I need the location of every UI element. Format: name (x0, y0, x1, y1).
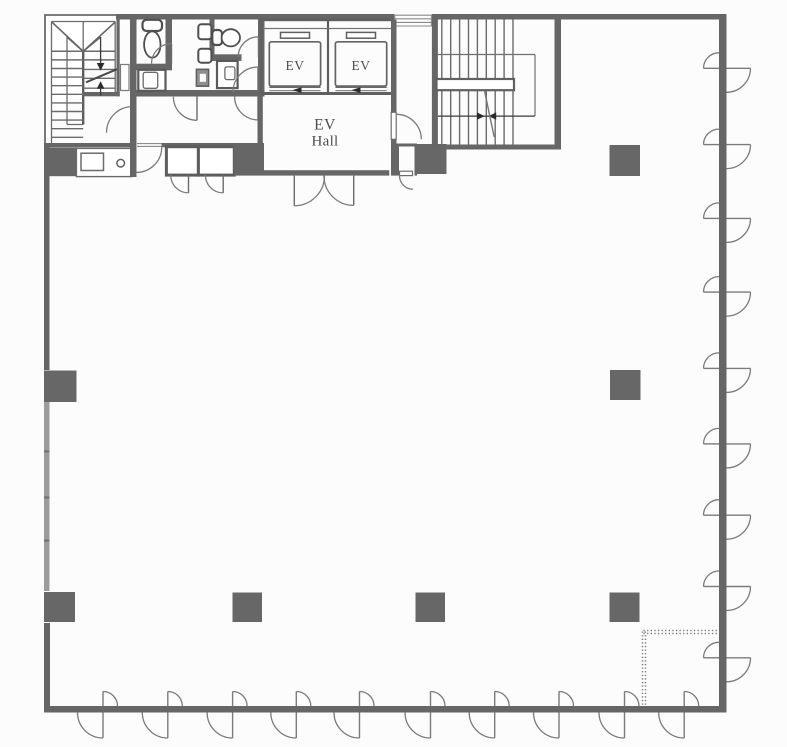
svg-text:EV: EV (314, 117, 336, 134)
svg-text:EV: EV (286, 58, 305, 73)
svg-text:EV: EV (352, 58, 371, 73)
svg-text:Hall: Hall (311, 134, 338, 150)
